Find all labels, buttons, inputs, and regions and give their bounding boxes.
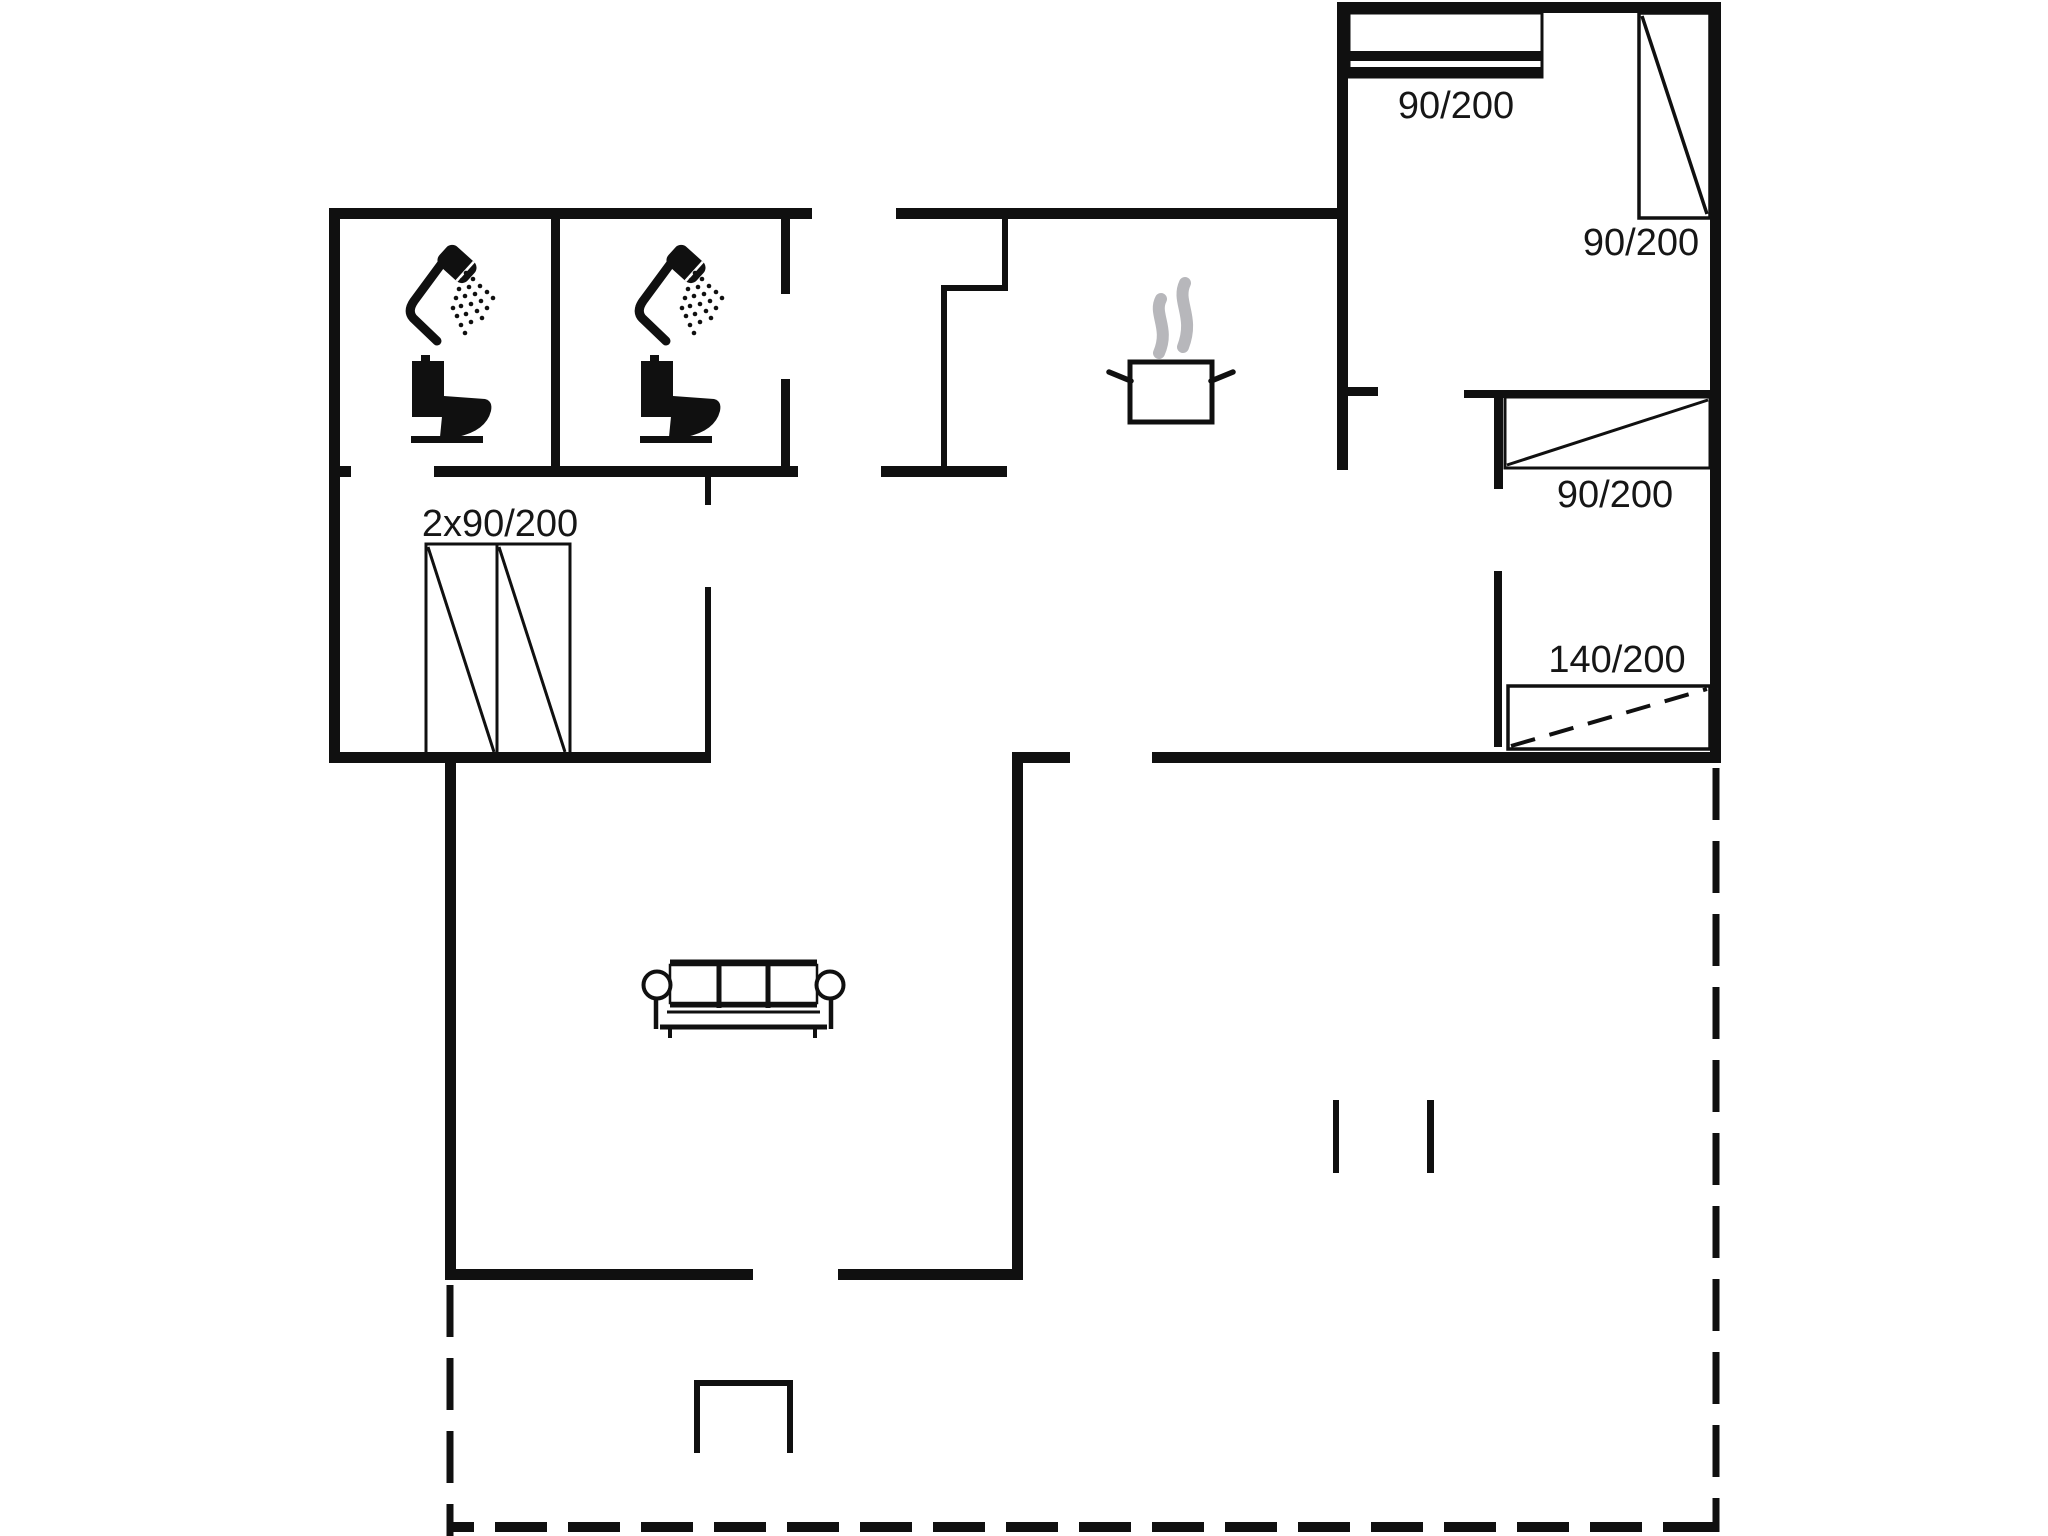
svg-text:140/200: 140/200 [1548, 639, 1685, 681]
svg-text:2x90/200: 2x90/200 [422, 503, 578, 545]
svg-text:90/200: 90/200 [1398, 85, 1514, 127]
svg-text:90/200: 90/200 [1557, 474, 1673, 516]
svg-text:90/200: 90/200 [1583, 222, 1699, 264]
